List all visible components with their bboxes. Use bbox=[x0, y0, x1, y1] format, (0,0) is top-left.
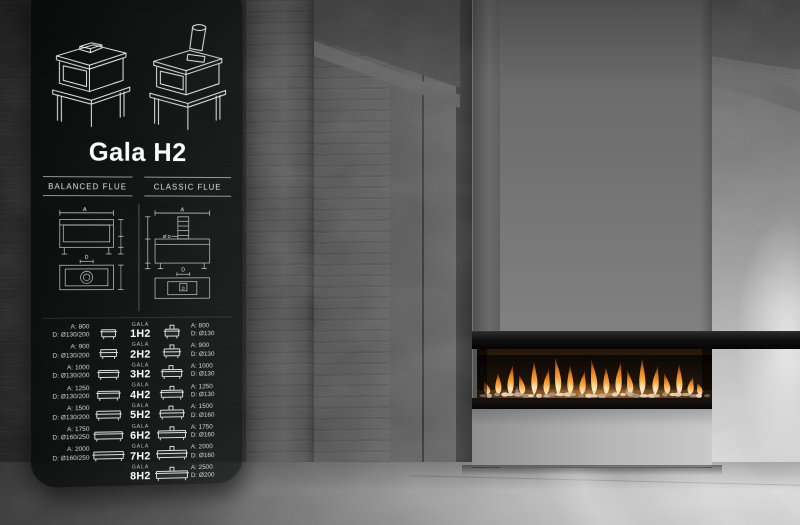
model-row: GALA8H2 A: 2500D: Ø200 bbox=[43, 462, 231, 487]
model-row: A: 1000D: Ø130/200 GALA3H2 A: 1000D: Ø13… bbox=[43, 361, 231, 384]
model-row: A: 900D: Ø130/200 GALA2H2 A: 900D: Ø130 bbox=[43, 340, 231, 363]
classic-spec: A: 2000D: Ø160 bbox=[188, 443, 231, 461]
classic-fireplace-icon bbox=[156, 343, 188, 360]
wall-light-patch bbox=[710, 180, 800, 470]
classic-flue-illustration-icon bbox=[140, 18, 231, 136]
balanced-fireplace-icon bbox=[92, 466, 124, 484]
fireplace-hearth bbox=[472, 398, 712, 409]
column-headers: BALANCED FLUE CLASSIC FLUE bbox=[43, 176, 231, 197]
classic-spec: A: 1000D: Ø130 bbox=[188, 362, 231, 379]
model-name: GALA7H2 bbox=[125, 444, 156, 462]
fireplace-hood bbox=[472, 331, 800, 349]
balanced-spec: A: 900D: Ø130/200 bbox=[43, 344, 92, 362]
fireplace-firebox bbox=[477, 349, 712, 398]
balanced-fireplace-icon bbox=[92, 343, 124, 360]
svg-text:D: D bbox=[181, 267, 185, 273]
classic-fireplace-icon bbox=[156, 444, 188, 461]
column-divider bbox=[138, 204, 139, 311]
classic-spec: A: 1500D: Ø160 bbox=[188, 403, 231, 421]
model-name: GALA6H2 bbox=[125, 424, 156, 442]
balanced-spec: A: 1500D: Ø130/200 bbox=[43, 405, 92, 423]
classic-spec: A: 800D: Ø130 bbox=[188, 322, 231, 339]
balanced-fireplace-icon bbox=[92, 445, 124, 463]
classic-fireplace-icon bbox=[156, 464, 188, 482]
classic-spec: A: 900D: Ø130 bbox=[188, 342, 231, 359]
spec-panel: Gala H2 BALANCED FLUE CLASSIC FLUE A D bbox=[30, 0, 244, 489]
balanced-spec: A: 2000D: Ø160/250 bbox=[43, 446, 92, 464]
balanced-spec: A: 1000D: Ø130/200 bbox=[43, 364, 92, 382]
technical-diagrams: A D A Ø D bbox=[43, 202, 231, 310]
balanced-flue-header: BALANCED FLUE bbox=[43, 176, 132, 196]
model-name: GALA8H2 bbox=[125, 465, 156, 483]
model-table: A: 800D: Ø130/200 GALA1H2 A: 800D: Ø130 … bbox=[43, 316, 231, 486]
balanced-flue-illustration-icon bbox=[43, 16, 136, 135]
model-row: A: 800D: Ø130/200 GALA1H2 A: 800D: Ø130 bbox=[43, 320, 231, 342]
fireplace-base-shadow bbox=[462, 465, 722, 475]
svg-text:A: A bbox=[83, 207, 87, 213]
balanced-spec: A: 1250D: Ø130/200 bbox=[43, 385, 92, 403]
classic-fireplace-icon bbox=[156, 322, 188, 339]
classic-spec: A: 1250D: Ø130 bbox=[188, 383, 231, 401]
classic-fireplace-icon bbox=[156, 404, 188, 421]
classic-fireplace-icon bbox=[156, 383, 188, 400]
concrete-pillar bbox=[246, 0, 316, 505]
classic-flue-header: CLASSIC FLUE bbox=[144, 177, 231, 197]
model-name: GALA2H2 bbox=[125, 343, 156, 361]
balanced-fireplace-icon bbox=[92, 405, 124, 422]
model-name: GALA4H2 bbox=[125, 383, 156, 401]
balanced-fireplace-icon bbox=[92, 425, 124, 443]
classic-flue-diagram: A Ø D D D bbox=[140, 202, 231, 309]
svg-text:D: D bbox=[182, 286, 185, 291]
svg-text:D: D bbox=[85, 255, 89, 261]
model-name: GALA1H2 bbox=[125, 322, 156, 340]
classic-spec: A: 2500D: Ø200 bbox=[188, 463, 231, 481]
model-name: GALA3H2 bbox=[125, 363, 156, 381]
balanced-fireplace-icon bbox=[92, 364, 124, 381]
fireplace-flames bbox=[477, 349, 712, 398]
fireplace-base bbox=[472, 409, 712, 467]
balanced-fireplace-icon bbox=[92, 384, 124, 401]
model-name: GALA5H2 bbox=[125, 404, 156, 422]
classic-spec: A: 1750D: Ø160 bbox=[188, 423, 231, 441]
classic-fireplace-icon bbox=[156, 424, 188, 441]
product-illustrations bbox=[43, 16, 231, 136]
balanced-flue-diagram: A D bbox=[43, 202, 136, 310]
svg-text:Ø D: Ø D bbox=[163, 234, 172, 239]
wall-seam bbox=[422, 60, 424, 505]
page-title: Gala H2 bbox=[43, 136, 231, 168]
balanced-spec: A: 1750D: Ø160/250 bbox=[43, 426, 92, 444]
scene: Gala H2 BALANCED FLUE CLASSIC FLUE A D bbox=[0, 0, 800, 525]
svg-text:A: A bbox=[181, 207, 185, 213]
balanced-spec: A: 800D: Ø130/200 bbox=[43, 323, 92, 341]
balanced-spec bbox=[43, 475, 92, 476]
balanced-fireplace-icon bbox=[92, 323, 124, 340]
classic-fireplace-icon bbox=[156, 363, 188, 380]
